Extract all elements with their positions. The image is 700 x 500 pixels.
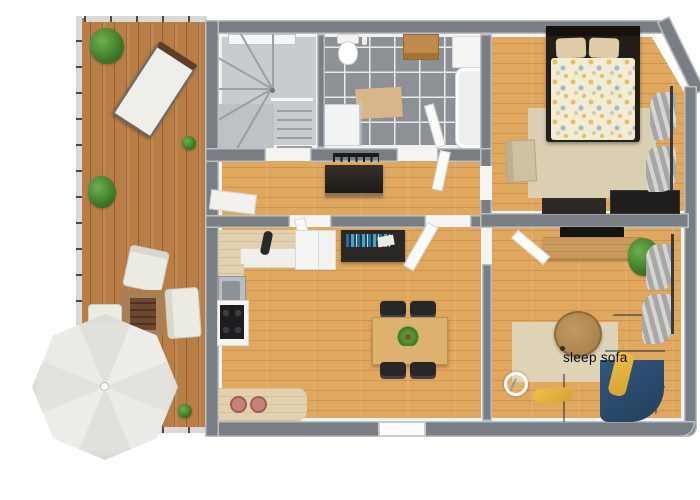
table-plant-icon [397, 326, 419, 346]
curtain [646, 244, 674, 290]
parasol-pole [100, 382, 109, 391]
toilet-bowl [338, 41, 358, 65]
bedroom-dresser [542, 198, 606, 214]
door-threshold [480, 166, 492, 200]
wall-stairs-bathroom [317, 34, 325, 148]
dining-chair [410, 362, 436, 379]
stair-tread-line [277, 137, 312, 139]
wall-hallway-north [205, 148, 266, 162]
stair-tread-line [277, 119, 312, 121]
bathroom-floor [319, 34, 484, 148]
shower-tray [324, 104, 360, 146]
kitchen-sink-basin [222, 281, 240, 302]
bar-stool [250, 396, 267, 413]
bed-pillow [556, 37, 587, 58]
wall-bathroom-bedroom [480, 34, 492, 162]
outdoor-chair [122, 244, 170, 293]
potted-plant-icon [88, 176, 116, 208]
stairs-newel-post [270, 88, 275, 93]
wall-exterior-left [205, 20, 219, 437]
stairs-glass-balustrade [271, 98, 313, 101]
deck-railing-top [84, 16, 207, 22]
wall-exterior-right [684, 86, 697, 437]
door-threshold [482, 228, 492, 264]
stove-burners [220, 305, 244, 339]
potted-plant-icon [182, 136, 196, 150]
dining-white-cabinet [318, 230, 336, 270]
floor-plan-render: sleep sofa [0, 0, 700, 500]
window-south [378, 421, 426, 437]
curtain-rod [670, 86, 673, 190]
bed-pillow [589, 37, 620, 58]
curtain [642, 294, 672, 344]
wardrobe [610, 190, 680, 214]
bath-mat [355, 87, 403, 119]
sofa-pillow [533, 387, 574, 404]
hall-sideboard [325, 165, 383, 196]
potted-plant-icon [90, 28, 124, 64]
door-threshold [266, 149, 310, 161]
stair-tread-line [277, 128, 312, 130]
sleep-sofa-label: sleep sofa [563, 350, 643, 365]
stair-tread-line [277, 110, 312, 112]
stair-tread-line [272, 34, 274, 90]
wall-hallway-south [205, 215, 290, 228]
wall-dining-living [482, 264, 492, 421]
coat-rack-hooks [333, 157, 379, 162]
toilet-paper-holder [362, 36, 367, 45]
bathroom-cabinet [403, 34, 439, 60]
dining-chair [410, 301, 436, 318]
dining-chair [380, 301, 406, 318]
stair-tread-line [219, 89, 272, 91]
bathroom-door-leaf [424, 103, 446, 148]
stairs-window [228, 34, 296, 45]
potted-plant-icon [178, 404, 192, 418]
outdoor-chair [164, 287, 201, 339]
bed-headboard [546, 26, 640, 36]
staircase-room-floor [219, 34, 319, 148]
shower-glass [359, 100, 362, 146]
dining-chair [380, 362, 406, 379]
bedroom-chair [505, 139, 537, 183]
bar-stool [230, 396, 247, 413]
wall-hallway-south [330, 215, 426, 228]
stairs-landing [219, 104, 274, 148]
stair-tread-line [219, 51, 273, 90]
door-threshold [398, 149, 437, 161]
wall-exterior-bottom [205, 421, 695, 437]
outdoor-table-slats [130, 298, 156, 330]
camera-viewpoint-icon [504, 372, 528, 396]
bed-duvet [551, 58, 635, 140]
curtain-rod [671, 234, 674, 334]
wall-bedroom-living [480, 213, 689, 228]
